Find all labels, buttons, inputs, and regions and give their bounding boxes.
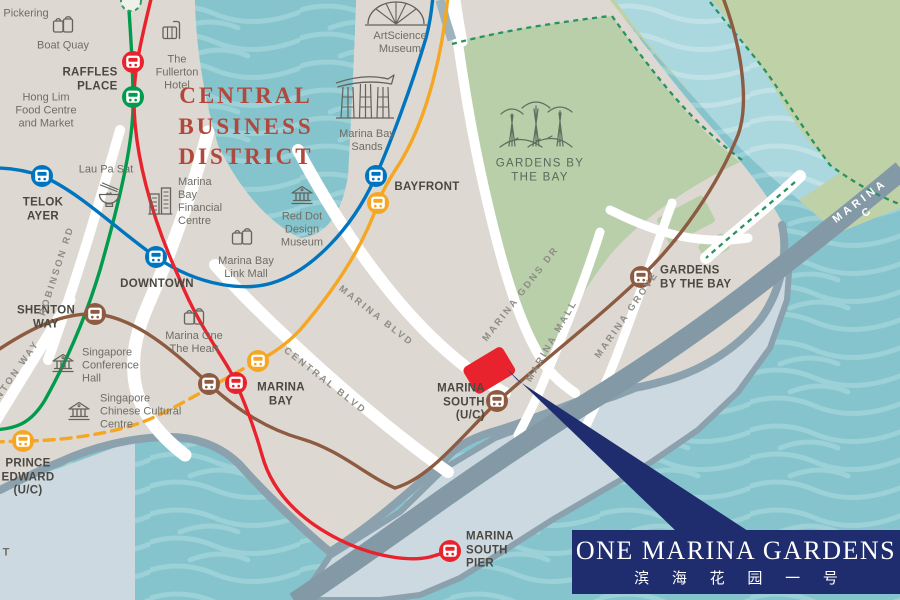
station-telok-ayer-icon (31, 165, 53, 187)
station-marina-bay-nsl-icon (225, 372, 247, 394)
one-marina-gardens-location-map: Pickering Boat Quay The Fullerton Hotel … (0, 0, 900, 600)
station-raffles-place-nsl-icon (122, 51, 144, 73)
station-shenton-way-icon (84, 303, 106, 325)
station-raffles-place-ewl-icon (122, 86, 144, 108)
map-canvas (0, 0, 900, 600)
future-station-dashed-circle (121, 0, 141, 11)
station-marina-bay-tel-icon (198, 373, 220, 395)
banner-title: ONE MARINA GARDENS (576, 536, 896, 566)
banner-subtitle-chinese: 滨 海 花 园 一 号 (625, 567, 847, 588)
station-bayfront-dtl-icon (365, 165, 387, 187)
station-gardens-by-the-bay-icon (630, 266, 652, 288)
project-banner: ONE MARINA GARDENS 滨 海 花 园 一 号 (572, 530, 900, 594)
station-marina-south-icon (486, 390, 508, 412)
station-bayfront-ccl-icon (367, 192, 389, 214)
station-prince-edward-icon (12, 430, 34, 452)
station-downtown-icon (145, 246, 167, 268)
station-marina-south-pier-icon (439, 540, 461, 562)
station-marina-bay-ccl-icon (247, 350, 269, 372)
